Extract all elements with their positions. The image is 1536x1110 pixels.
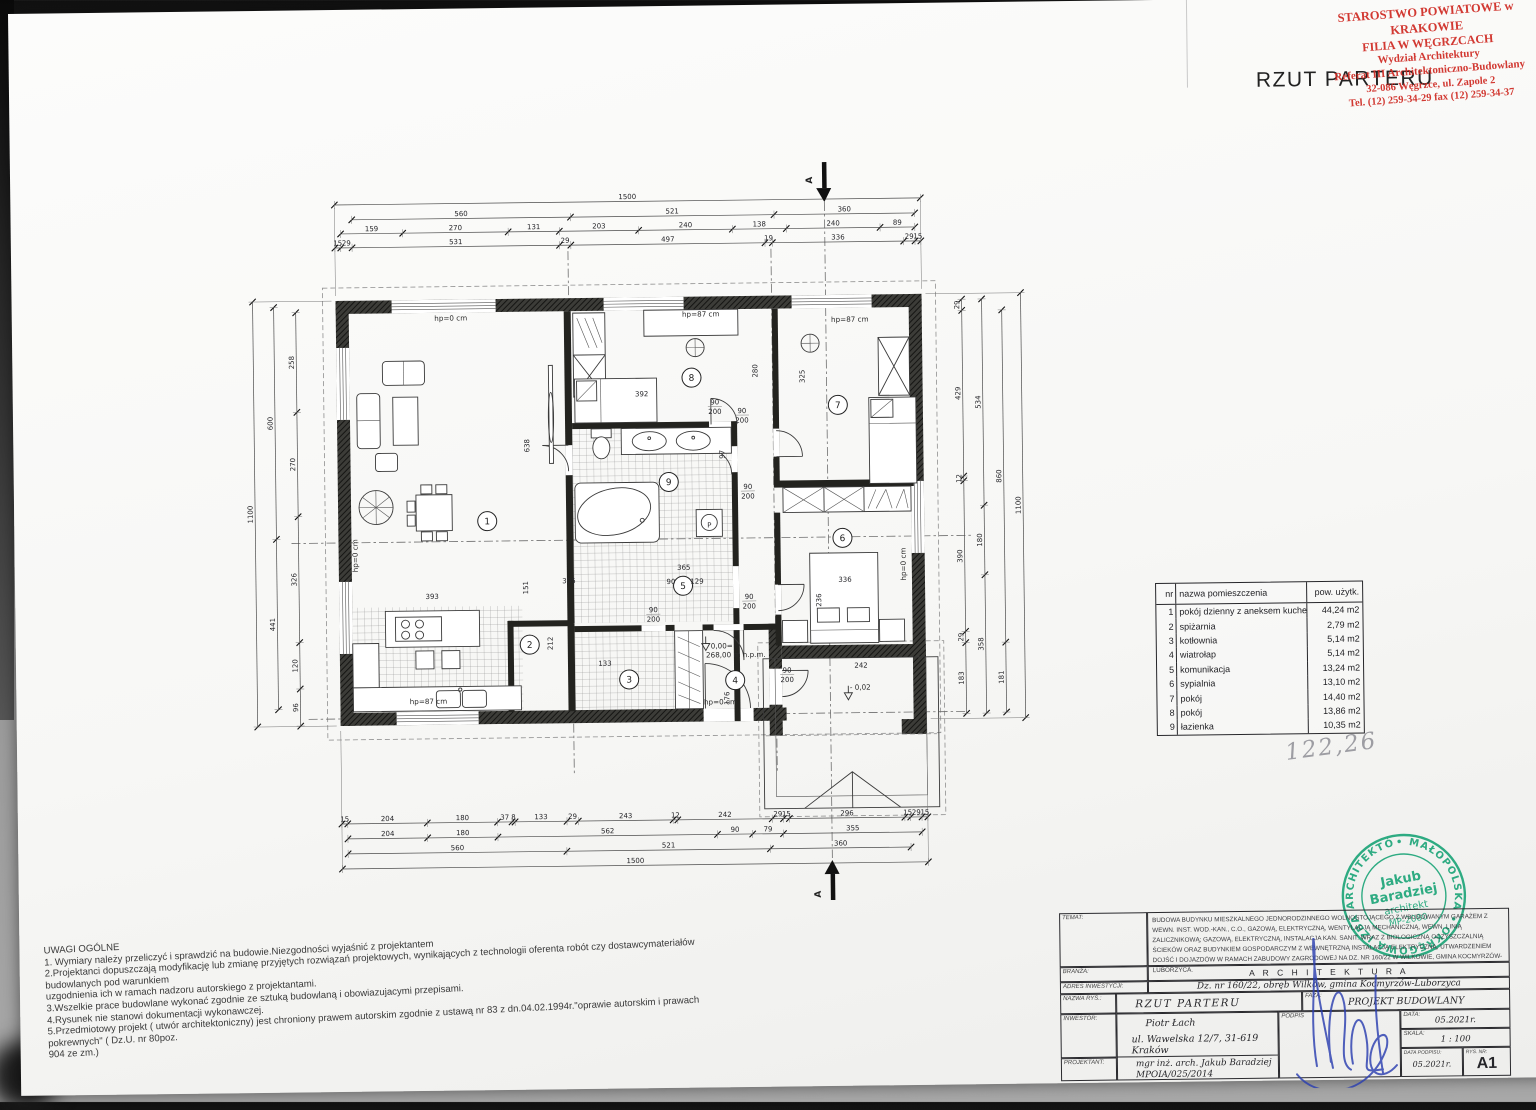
svg-text:19: 19 [764, 234, 773, 242]
svg-text:180: 180 [976, 533, 984, 546]
svg-text:360: 360 [834, 839, 847, 847]
table-row: 9łazienka10,35 m2 [1158, 718, 1364, 735]
svg-text:236: 236 [815, 593, 823, 607]
scanned-sheet: RZUT PARTERU STAROSTWO POWIATOWE w KRAKO… [8, 0, 1536, 1096]
svg-text:4: 4 [732, 676, 738, 686]
svg-text:392: 392 [635, 390, 648, 398]
svg-text:521: 521 [662, 842, 675, 850]
svg-text:3: 3 [626, 676, 632, 686]
svg-text:A: A [805, 177, 815, 184]
svg-text:hp=87 cm: hp=87 cm [410, 697, 448, 706]
svg-text:29: 29 [957, 633, 965, 642]
svg-text:120: 120 [292, 659, 300, 672]
svg-text:90: 90 [649, 606, 658, 614]
rys-nr-value: A1 [1464, 1055, 1510, 1074]
svg-text:240: 240 [679, 221, 692, 229]
branza-label: BRANŻA: [1063, 969, 1089, 975]
svg-text:305: 305 [562, 577, 575, 585]
svg-text:180: 180 [456, 829, 469, 837]
svg-text:268,00 m n.p.m.: 268,00 m n.p.m. [706, 650, 766, 660]
general-notes: UWAGI OGÓLNE1. Wymiary należy przeliczyć… [43, 912, 738, 1062]
svg-text:429: 429 [954, 387, 962, 400]
svg-text:90: 90 [731, 826, 740, 834]
svg-text:204: 204 [381, 830, 395, 838]
svg-text:37: 37 [500, 814, 509, 822]
adres-label: ADRES INWESTYCJI: [1063, 983, 1123, 990]
svg-text:531: 531 [449, 238, 462, 246]
rooms-table: nrnazwa pomieszczeniapow. użytk.1pokój d… [1155, 580, 1365, 735]
svg-text:12: 12 [955, 474, 963, 483]
svg-text:12: 12 [671, 811, 680, 819]
floor-plan-svg: 1500560521360159270131203240138240891529… [232, 147, 1051, 922]
table-header: nazwa pomieszczenia [1176, 587, 1306, 599]
nazwa-value: RZUT PARTERU [1116, 991, 1302, 1013]
svg-text:29: 29 [342, 239, 351, 247]
svg-text:90: 90 [783, 666, 792, 674]
svg-text:326: 326 [290, 572, 298, 586]
svg-text:360: 360 [838, 205, 851, 213]
svg-text:600: 600 [267, 417, 275, 430]
svg-text:365: 365 [677, 564, 690, 572]
svg-text:29: 29 [561, 237, 570, 245]
svg-text:hp=87 cm: hp=87 cm [682, 309, 720, 318]
svg-text:534: 534 [974, 395, 982, 409]
svg-text:280: 280 [751, 364, 759, 377]
svg-text:200: 200 [743, 602, 756, 610]
svg-text:212: 212 [547, 637, 555, 650]
svg-text:90: 90 [743, 483, 752, 491]
svg-text:258: 258 [288, 356, 296, 369]
svg-text:325: 325 [798, 370, 806, 383]
svg-text:hp=0 cm: hp=0 cm [704, 697, 737, 706]
svg-text:1500: 1500 [626, 857, 644, 865]
svg-text:441: 441 [269, 618, 277, 631]
inwestor-label: INWESTOR: [1063, 1016, 1097, 1022]
signature [1277, 915, 1419, 1089]
paper-fold-line [1186, 0, 1188, 88]
svg-text:15: 15 [913, 232, 922, 240]
svg-text:242: 242 [854, 662, 867, 670]
svg-text:243: 243 [619, 812, 632, 820]
svg-text:hp=0 cm: hp=0 cm [350, 539, 359, 572]
temat-label: TEMAT: [1062, 915, 1083, 921]
svg-text:9: 9 [666, 478, 672, 488]
svg-text:90: 90 [710, 398, 719, 406]
svg-text:562: 562 [601, 827, 614, 835]
svg-text:521: 521 [665, 207, 678, 215]
nazwa-label: NAZWA RYS.: [1063, 996, 1102, 1002]
svg-text:89: 89 [893, 219, 902, 227]
svg-text:1500: 1500 [618, 193, 636, 201]
svg-text:hp=0 cm: hp=0 cm [899, 548, 908, 581]
svg-text:P: P [707, 521, 711, 529]
svg-text:hp=0 cm: hp=0 cm [434, 313, 467, 322]
svg-text:203: 203 [592, 222, 605, 230]
svg-text:133: 133 [534, 813, 547, 821]
svg-text:638: 638 [523, 439, 531, 452]
svg-text:270: 270 [449, 224, 462, 232]
svg-text:180: 180 [456, 814, 469, 822]
office-ink-stamp: STAROSTWO POWIATOWE w KRAKOWIEFILIA W WĘ… [1305, 0, 1536, 113]
svg-text:240: 240 [826, 219, 839, 227]
svg-text:860: 860 [995, 469, 1003, 482]
svg-text:1100: 1100 [1015, 496, 1023, 514]
svg-text:200: 200 [780, 676, 793, 684]
svg-text:390: 390 [956, 549, 964, 562]
svg-text:1: 1 [484, 517, 490, 527]
table-header: pow. użytk. [1306, 582, 1362, 603]
svg-text:7: 7 [835, 401, 841, 411]
svg-text:183: 183 [958, 671, 966, 684]
inwestor-name: Piotr Łach [1145, 1017, 1277, 1030]
svg-text:90: 90 [666, 578, 675, 586]
projektant-label: PROJEKTANT: [1064, 1060, 1105, 1066]
svg-text:hp=87 cm: hp=87 cm [831, 315, 869, 324]
svg-text:242: 242 [718, 811, 731, 819]
svg-text:176: 176 [723, 691, 731, 705]
svg-text:181: 181 [998, 670, 1006, 683]
svg-text:200: 200 [741, 492, 754, 500]
svg-text:355: 355 [846, 824, 859, 832]
svg-text:- 0,02: - 0,02 [850, 683, 871, 692]
svg-text:2: 2 [527, 641, 533, 651]
rys-nr-label: RYS. NR: [1466, 1049, 1488, 1055]
svg-text:15: 15 [340, 815, 349, 823]
svg-text:200: 200 [708, 408, 721, 416]
table-header: nr [1156, 584, 1176, 604]
svg-text:129: 129 [690, 578, 703, 586]
svg-text:90: 90 [737, 407, 746, 415]
svg-text:29: 29 [568, 813, 577, 821]
svg-text:29: 29 [953, 300, 961, 309]
svg-text:97: 97 [718, 450, 726, 459]
svg-text:204: 204 [381, 815, 395, 823]
svg-text:336: 336 [831, 233, 845, 241]
svg-text:393: 393 [425, 593, 438, 601]
svg-text:6: 6 [840, 534, 846, 544]
svg-text:560: 560 [454, 210, 467, 218]
svg-text:8: 8 [511, 813, 516, 821]
svg-text:133: 133 [598, 660, 611, 668]
svg-text:A: A [814, 891, 824, 898]
svg-text:15: 15 [782, 810, 791, 818]
svg-text:270: 270 [289, 458, 297, 471]
svg-text:96: 96 [292, 703, 300, 713]
svg-text:5: 5 [680, 582, 686, 592]
svg-text:8: 8 [689, 374, 695, 384]
svg-text:560: 560 [451, 844, 464, 852]
svg-text:200: 200 [647, 616, 660, 624]
inwestor-address: ul. Wawelska 12/7, 31-619 Kraków [1132, 1033, 1278, 1057]
svg-text:358: 358 [977, 637, 985, 650]
projektant-number: MPOIA/025/2014 [1136, 1069, 1278, 1081]
svg-text:79: 79 [764, 825, 773, 833]
section-markers: AA [805, 162, 840, 900]
svg-text:131: 131 [527, 223, 540, 231]
svg-text:159: 159 [365, 225, 378, 233]
svg-text:296: 296 [840, 809, 854, 817]
svg-text:15: 15 [920, 808, 929, 816]
svg-text:1100: 1100 [247, 506, 255, 524]
svg-text:0,00=: 0,00= [711, 641, 733, 650]
svg-text:336: 336 [838, 576, 852, 584]
svg-text:138: 138 [753, 220, 766, 228]
svg-text:200: 200 [735, 416, 748, 424]
svg-text:151: 151 [522, 581, 530, 594]
svg-text:497: 497 [661, 235, 674, 243]
projektant-name: mgr inż. arch. Jakub Baradziej [1136, 1058, 1278, 1070]
floor-plan: 1500560521360159270131203240138240891529… [232, 147, 1051, 927]
svg-text:90: 90 [745, 593, 754, 601]
